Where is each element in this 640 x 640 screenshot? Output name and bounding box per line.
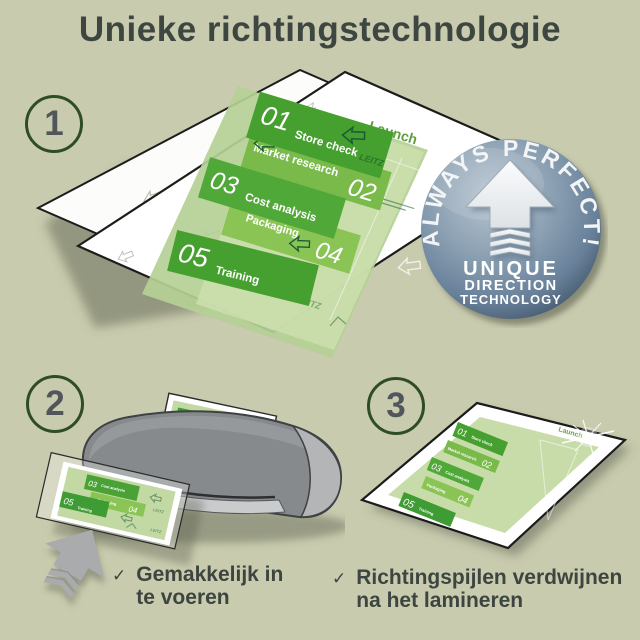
caption-line: na het lamineren	[356, 589, 523, 612]
caption-line: Gemakkelijk in	[136, 563, 283, 586]
always-perfect-badge: ALWAYS PERFECT! UNIQUE DIRECTION TECHNOL…	[416, 132, 608, 328]
caption-easy-feed: ✓ Gemakkelijk in te voeren	[112, 563, 283, 609]
badge-line1: UNIQUE	[463, 258, 559, 280]
step-3-label: 3	[386, 386, 405, 426]
caption-line: te voeren	[136, 586, 229, 609]
step-2-label: 2	[45, 384, 64, 424]
page-title: Unieke richtingstechnologie	[0, 10, 640, 50]
step-number-1: 1	[25, 95, 83, 153]
step-1-label: 1	[44, 104, 63, 144]
checkmark-icon: ✓	[332, 566, 346, 612]
caption-line: Richtingspijlen verdwijnen	[356, 566, 622, 589]
badge-line3: TECHNOLOGY	[460, 292, 562, 307]
step-number-2: 2	[26, 375, 84, 433]
step-number-3: 3	[367, 377, 425, 435]
caption-arrows-disappear: ✓ Richtingspijlen verdwijnen na het lami…	[332, 566, 622, 612]
checkmark-icon: ✓	[112, 563, 126, 609]
